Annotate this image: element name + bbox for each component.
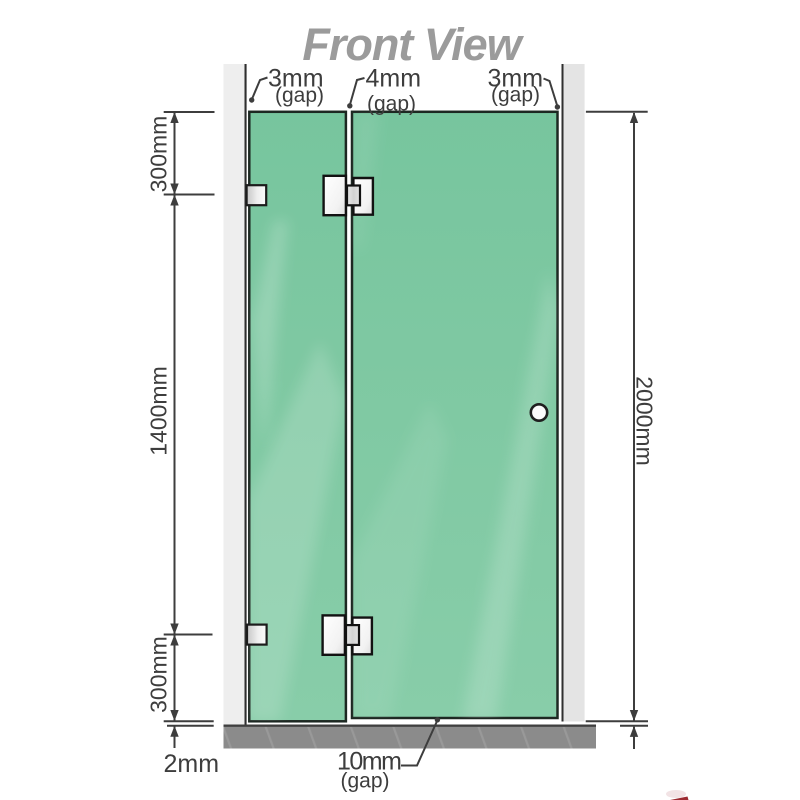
svg-text:2000mm: 2000mm [631, 376, 657, 465]
svg-text:(gap): (gap) [340, 770, 389, 793]
svg-text:1400mm: 1400mm [146, 366, 172, 455]
svg-text:(gap): (gap) [367, 93, 416, 116]
svg-text:(gap): (gap) [275, 84, 324, 107]
svg-text:300mm: 300mm [146, 116, 172, 193]
svg-text:(gap): (gap) [491, 84, 540, 107]
svg-text:2mm: 2mm [164, 750, 220, 778]
svg-text:Front View: Front View [302, 19, 524, 70]
svg-text:4mm: 4mm [366, 65, 422, 93]
svg-text:300mm: 300mm [146, 636, 172, 713]
